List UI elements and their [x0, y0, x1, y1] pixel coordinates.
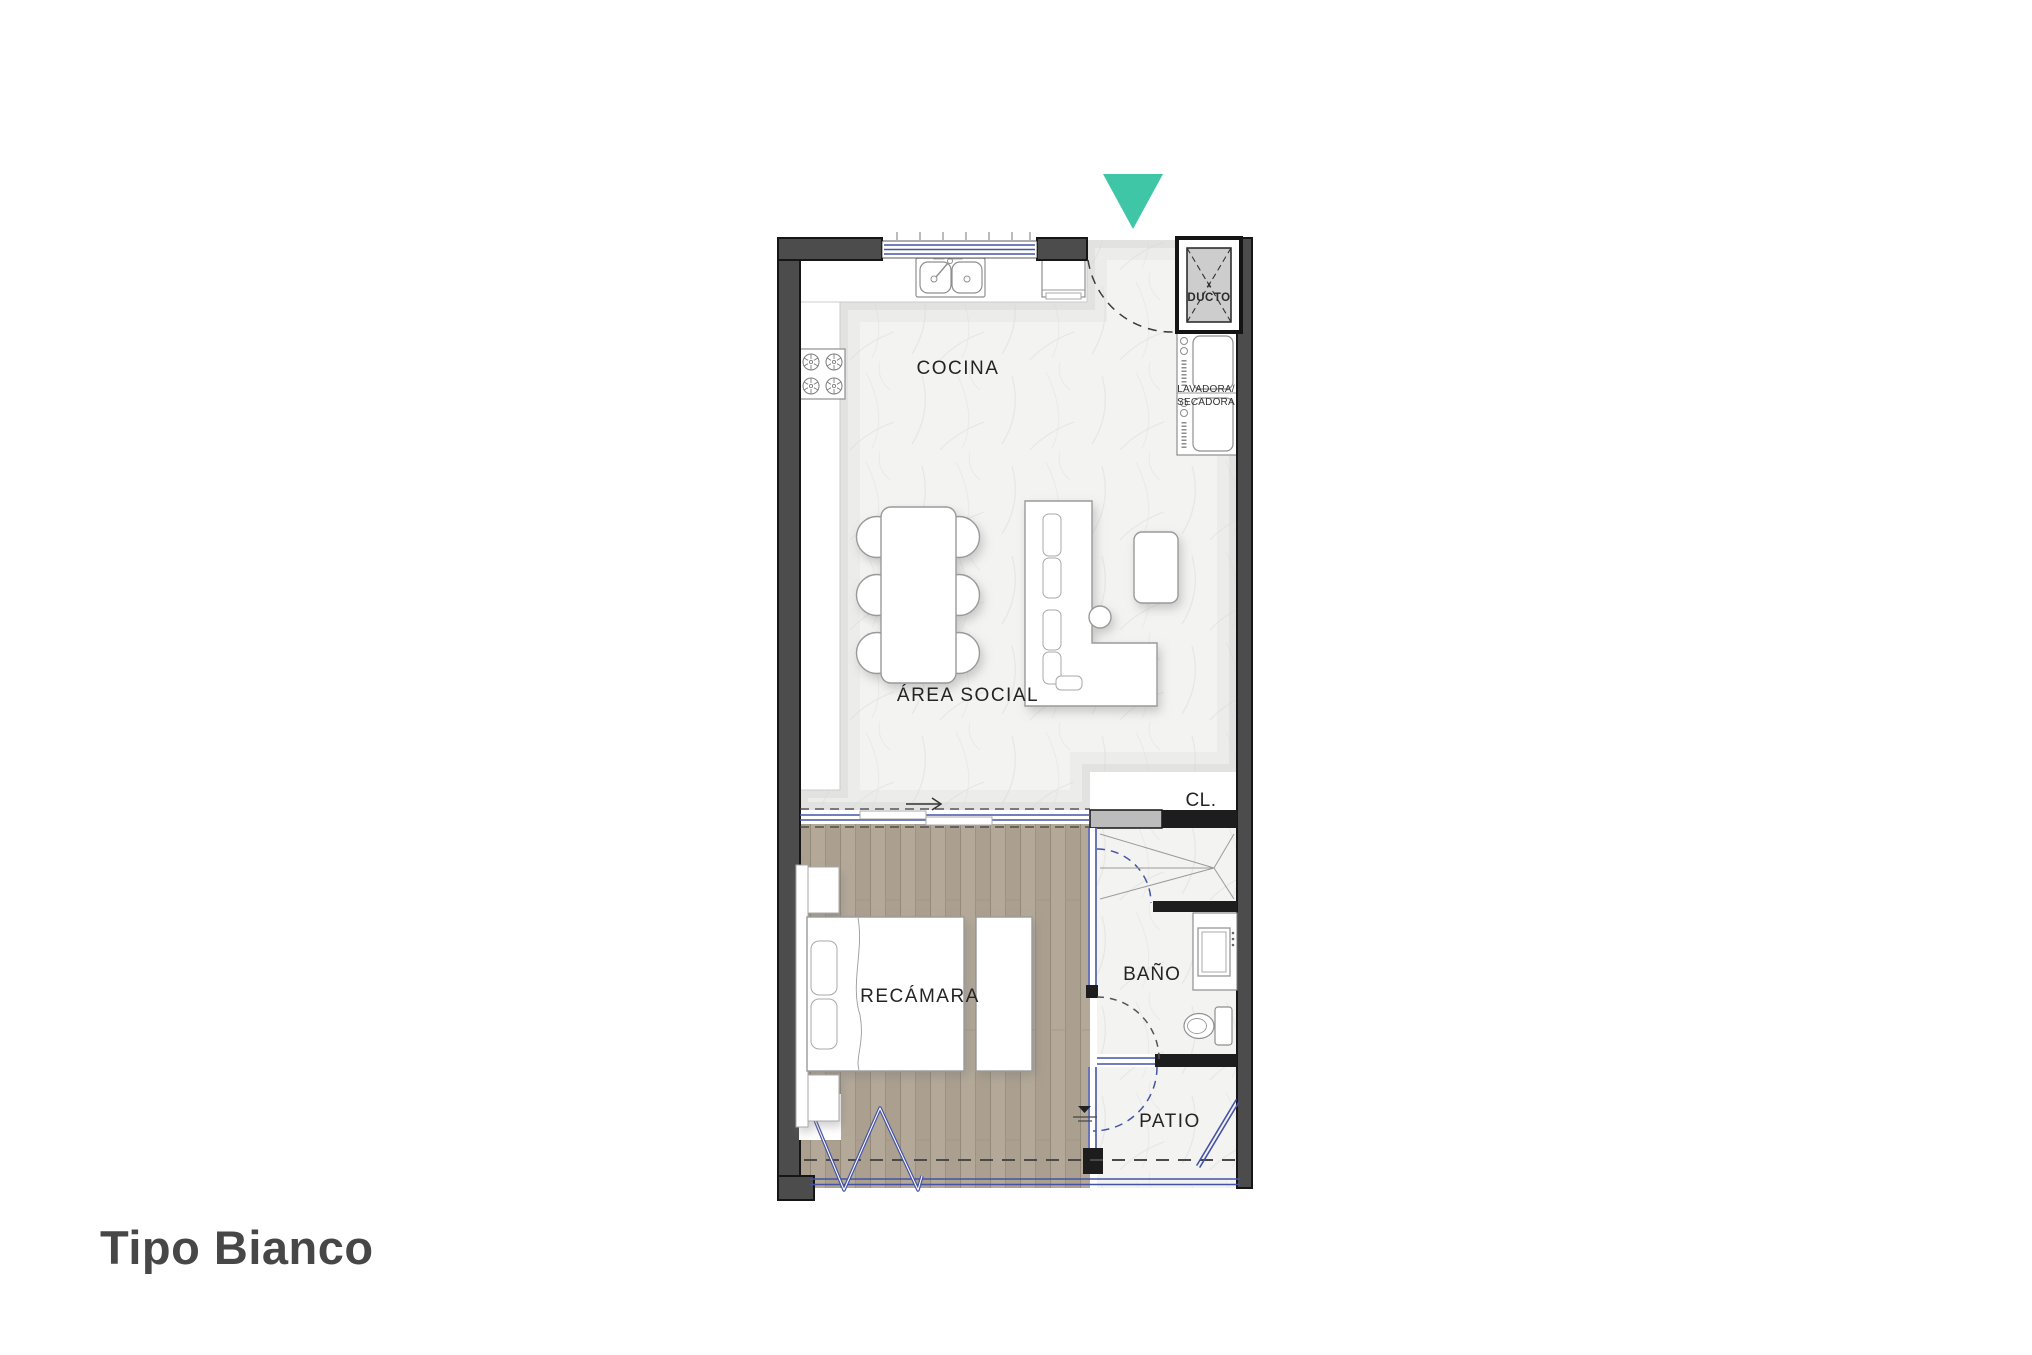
duct-label: DUCTO: [1187, 292, 1230, 304]
closet-label: CL.: [1185, 790, 1216, 811]
social-area-label: ÁREA SOCIAL: [897, 685, 1039, 706]
shower-wall: [1153, 901, 1237, 912]
top-wall-left: [778, 238, 882, 260]
kitchen-label: COCINA: [917, 358, 1000, 379]
round-side-table: [1089, 606, 1111, 628]
pillow: [811, 999, 837, 1049]
entrance-marker-icon: [1103, 174, 1163, 229]
stove: [799, 349, 845, 399]
nightstand-bottom: [808, 1075, 839, 1121]
floor-plan: COCINA ÁREA SOCIAL RECÁMARA BAÑO PATIO C…: [0, 0, 2032, 1355]
duct-x-mark: x: [1207, 279, 1212, 290]
bathroom-vanity: [1193, 913, 1237, 990]
dining-set: [857, 507, 980, 683]
left-wall-foot: [778, 1176, 814, 1200]
bedroom-label: RECÁMARA: [860, 986, 980, 1007]
headboard: [796, 865, 808, 1127]
washer-label-line2: SECADORA: [1177, 397, 1235, 408]
bed-foot-bench: [976, 917, 1032, 1071]
nightstand-top: [808, 867, 839, 913]
coffee-table: [1134, 532, 1178, 603]
plan-title: Tipo Bianco: [100, 1220, 374, 1275]
kitchen-window: [882, 232, 1037, 258]
oven-appliance: [1042, 257, 1085, 299]
bath-patio-wall: [1155, 1054, 1237, 1067]
double-sink: [916, 252, 985, 297]
top-wall-right: [1037, 238, 1087, 260]
bath-patio-door-threshold: [1097, 1058, 1155, 1064]
pillow: [811, 941, 837, 995]
dining-table: [881, 507, 956, 683]
bathroom-label: BAÑO: [1123, 963, 1181, 985]
patio-label: PATIO: [1139, 1111, 1201, 1132]
closet-wall: [1162, 810, 1237, 828]
closet-lintel: [1090, 810, 1162, 828]
washer-label-line1: LAVADORA/: [1177, 384, 1235, 395]
right-wall: [1237, 238, 1252, 1188]
